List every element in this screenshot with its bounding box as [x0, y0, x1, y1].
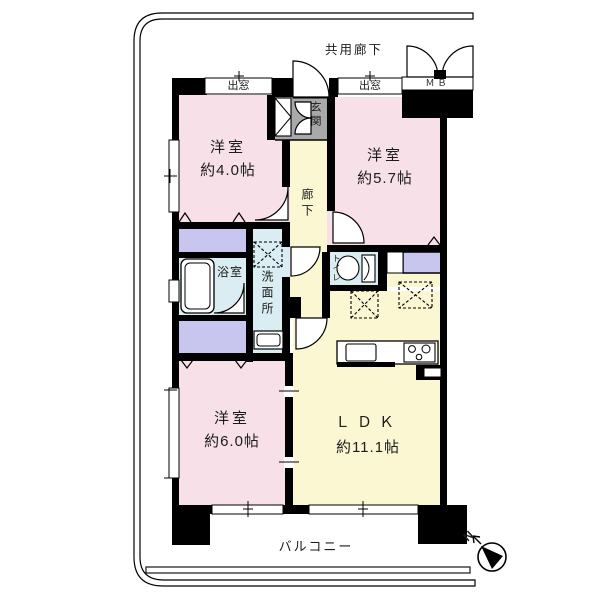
kitchen-counter	[337, 341, 438, 367]
washroom-label: 洗面所	[261, 270, 273, 332]
window	[169, 280, 179, 302]
window	[169, 388, 179, 478]
bedroom2-name: 洋室	[330, 148, 440, 163]
bedroom2-size: 約5.7帖	[330, 171, 440, 186]
hallway-label: 廊下	[301, 188, 313, 228]
ldk-name: ＬＤＫ	[308, 415, 428, 430]
bathroom-label: 浴室	[207, 266, 253, 278]
washbasin	[254, 331, 283, 349]
balcony-label: バルコニー	[270, 540, 362, 553]
kitchen-sink	[346, 344, 376, 361]
compass	[473, 536, 506, 571]
kitchen-notch	[424, 368, 441, 377]
entrance-door-swing	[293, 61, 329, 97]
door-panel	[387, 252, 403, 273]
bedroom1-size: 約4.0帖	[172, 163, 284, 178]
floor-plan: 共用廊下 出窓 出窓 ＭＢ 玄関 廊下 洋室 約4.0帖 洋室 約5.7帖 洋室…	[0, 0, 600, 600]
ldk-size: 約11.1帖	[303, 440, 433, 455]
meter-box-door-left	[407, 46, 438, 77]
balcony-edge	[146, 567, 470, 573]
bedroom3-name: 洋室	[176, 411, 288, 426]
common-corridor-label: 共用廊下	[316, 44, 392, 57]
meter-box-label: ＭＢ	[402, 79, 473, 88]
bedroom1-name: 洋室	[172, 140, 284, 155]
entrance-label: 玄関	[309, 101, 320, 139]
toilet-label: トイレ	[332, 254, 341, 286]
bay-window-right-label: 出窓	[338, 81, 402, 92]
bay-window-left-label: 出窓	[205, 81, 272, 92]
floor-plan-graphic	[0, 0, 600, 600]
shoe-cabinet	[275, 98, 291, 136]
kitchen-stove	[404, 343, 435, 362]
meter-box-door-right	[442, 46, 473, 77]
bedroom3-size: 約6.0帖	[176, 434, 288, 449]
